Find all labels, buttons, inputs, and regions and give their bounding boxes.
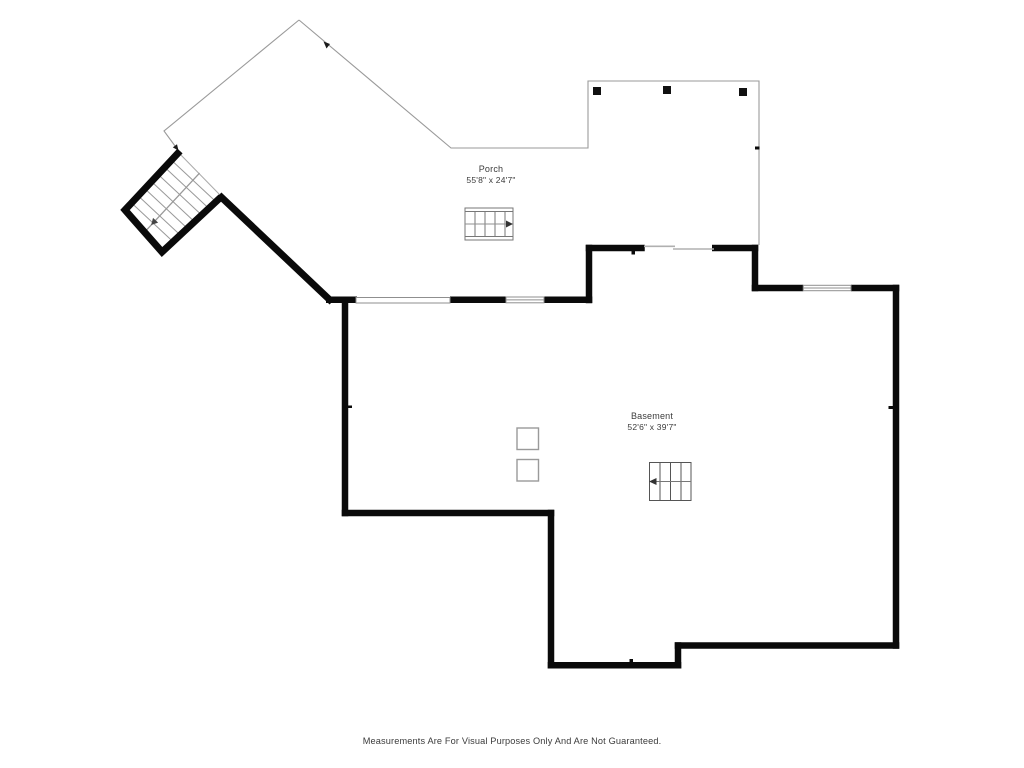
porch-outline — [164, 20, 759, 245]
porch-outline-arrow-icons — [173, 42, 330, 151]
room-dimensions: 52'6" x 39'7" — [627, 422, 676, 433]
disclaimer-text: Measurements Are For Visual Purposes Onl… — [363, 736, 662, 746]
room-name: Porch — [466, 164, 515, 175]
porch-posts — [593, 86, 747, 96]
porch-stairs-icon — [465, 208, 513, 240]
door-opening-icon — [644, 246, 714, 249]
post-icon — [663, 86, 671, 94]
column-icon — [517, 428, 539, 450]
floorplan-canvas: Porch 55'8" x 24'7" Basement 52'6" x 39'… — [0, 0, 1024, 768]
column-icon — [517, 460, 539, 482]
room-label-basement: Basement 52'6" x 39'7" — [627, 411, 676, 433]
room-dimensions: 55'8" x 24'7" — [466, 175, 515, 186]
post-icon — [739, 88, 747, 96]
support-columns — [517, 428, 539, 481]
window-icon — [356, 298, 450, 304]
post-icon — [593, 87, 601, 95]
corner-stairs-treads — [125, 153, 221, 250]
room-name: Basement — [627, 411, 676, 422]
room-label-porch: Porch 55'8" x 24'7" — [466, 164, 515, 186]
floorplan-drawing — [0, 0, 1024, 768]
basement-stairs-icon — [649, 463, 691, 501]
exterior-walls — [326, 245, 899, 669]
diagonal-wall — [219, 195, 332, 302]
wall-tick-marks — [348, 147, 893, 663]
